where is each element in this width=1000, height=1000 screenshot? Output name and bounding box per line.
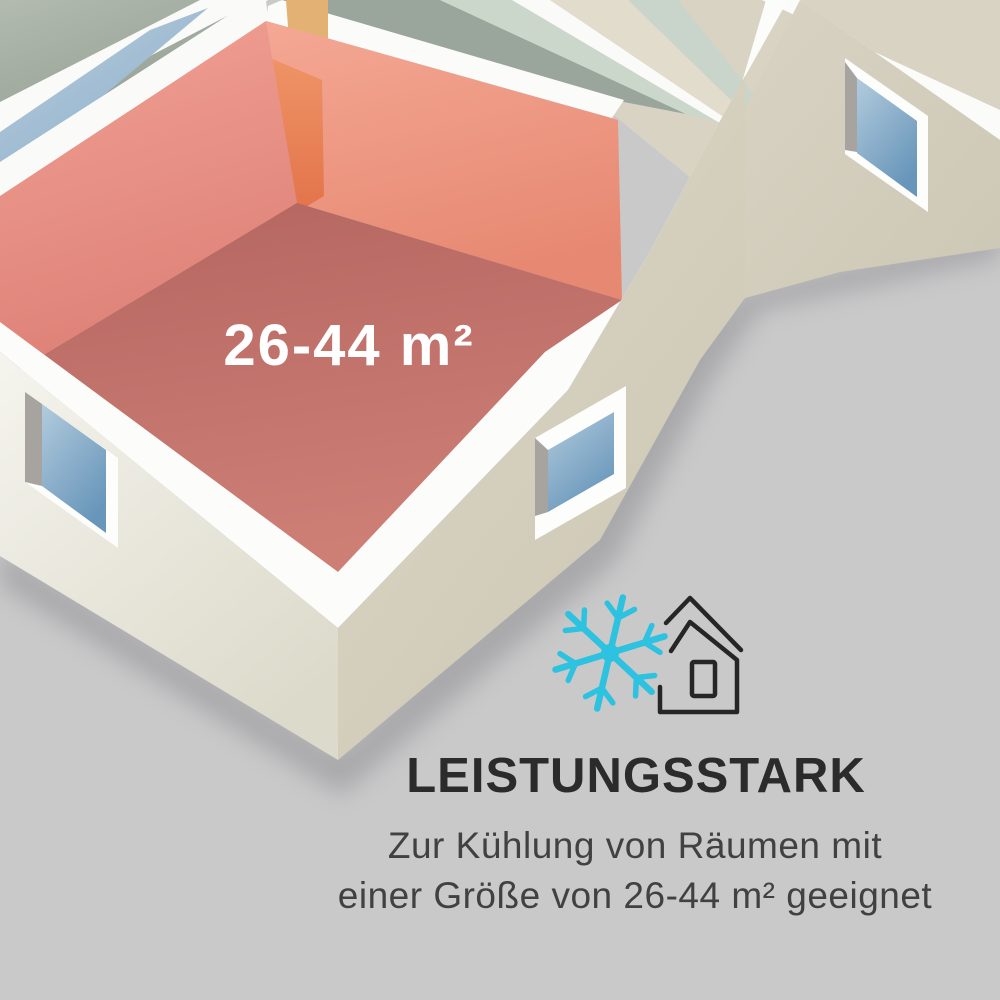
window-jamb [25,392,42,486]
caption-line-1: Zur Kühlung von Räumen mit [388,825,882,866]
floor-plan-illustration: 26-44 m² LEISTUNGSSTARK [0,0,1000,1000]
caption-headline: LEISTUNGSSTARK [406,749,866,803]
window-jamb [535,438,548,516]
caption-line-2: einer Größe von 26-44 m² geeignet [338,875,933,916]
room-area-label: 26-44 m² [223,313,474,378]
product-infographic: 26-44 m² LEISTUNGSSTARK [0,0,1000,1000]
